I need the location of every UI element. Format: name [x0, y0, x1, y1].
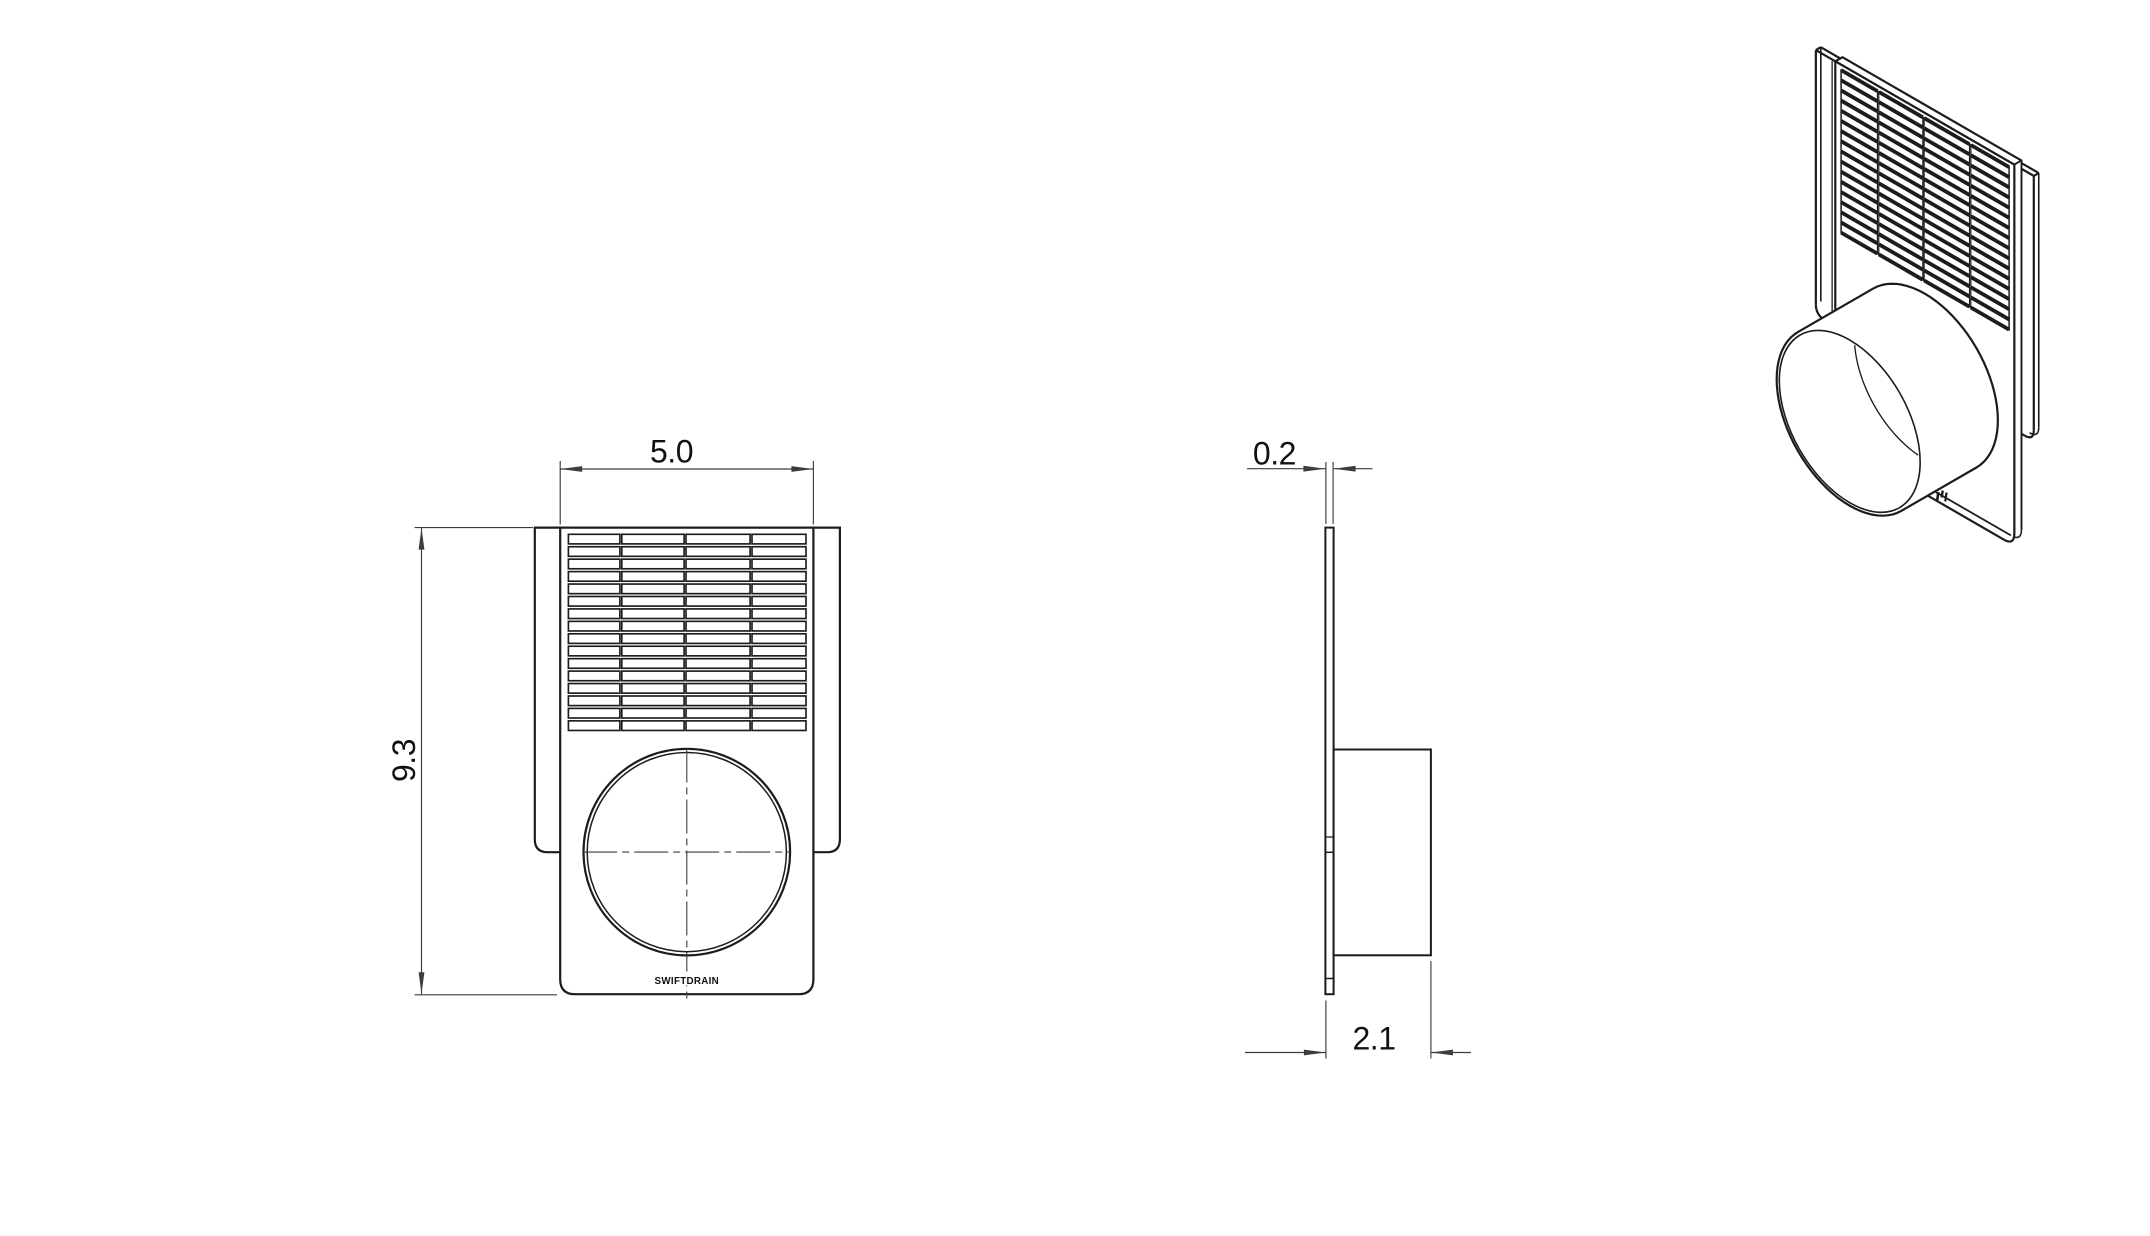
svg-text:2.1: 2.1: [1353, 1021, 1396, 1057]
svg-text:5.0: 5.0: [650, 434, 693, 470]
svg-text:9.3: 9.3: [386, 739, 422, 782]
svg-text:0.2: 0.2: [1253, 436, 1296, 472]
svg-text:SWIFTDRAIN: SWIFTDRAIN: [655, 976, 720, 987]
